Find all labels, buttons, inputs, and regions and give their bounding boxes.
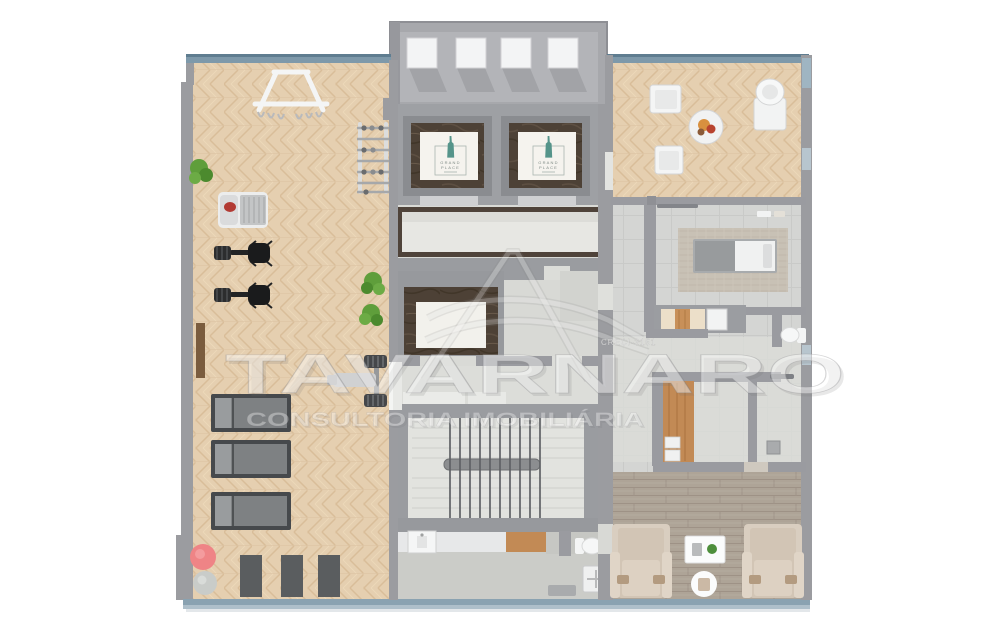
- svg-text:PLACE: PLACE: [441, 165, 460, 170]
- svg-text:TAVARNARO: TAVARNARO: [225, 342, 845, 405]
- svg-text:PLACE: PLACE: [539, 165, 558, 170]
- svg-text:CONSULTORIA IMOBILIÁRIA: CONSULTORIA IMOBILIÁRIA: [246, 409, 644, 431]
